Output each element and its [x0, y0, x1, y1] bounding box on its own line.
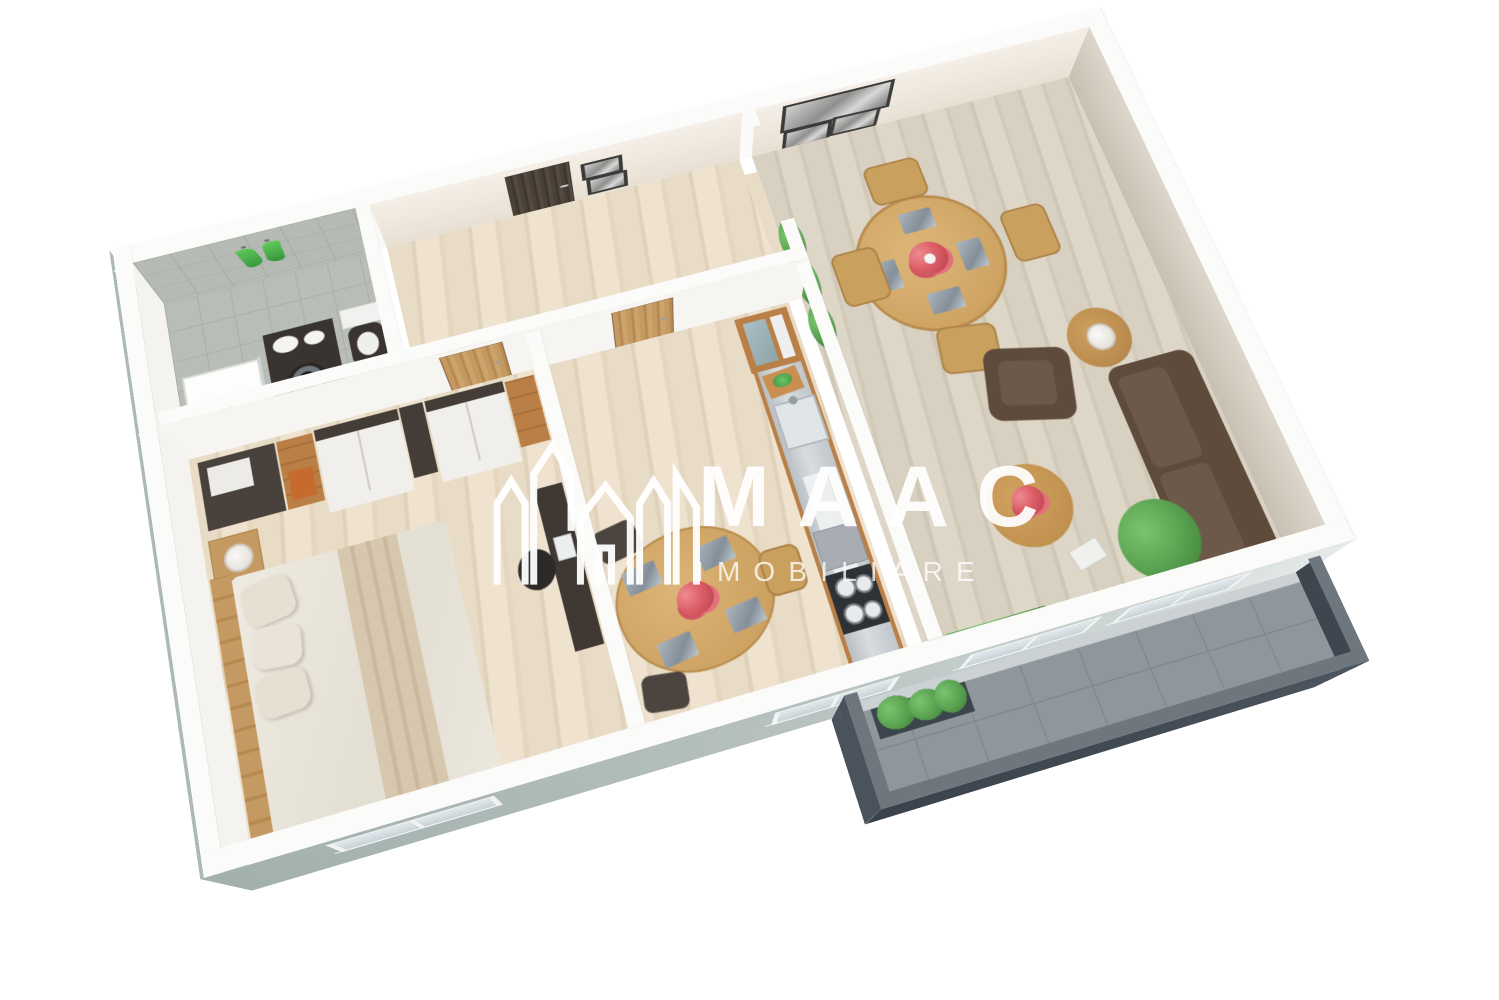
placemat: [724, 596, 767, 634]
coffee-table: [974, 454, 1086, 557]
placemat: [955, 237, 990, 271]
oven: [812, 521, 869, 572]
gas-hob: [824, 563, 890, 634]
wardrobe-box: [207, 457, 254, 496]
bed-blanket: [337, 533, 453, 816]
kitchen-sink: [772, 394, 829, 451]
laptop: [553, 533, 577, 561]
door-handle: [560, 184, 569, 188]
kitchen-chair-wood: [756, 542, 810, 599]
dining-chair: [997, 202, 1063, 264]
toilet-bowl: [355, 329, 381, 357]
placemat: [926, 286, 967, 315]
wardrobe-column-dark: [399, 402, 438, 478]
table-lamp: [1082, 320, 1121, 353]
orange-accent-box: [288, 466, 318, 501]
placemat: [620, 560, 663, 597]
pillow: [251, 621, 304, 672]
pillow: [237, 571, 299, 631]
book: [1068, 536, 1109, 572]
flower-bouquet: [671, 575, 719, 621]
wardrobe-white: [314, 409, 415, 513]
greens: [771, 371, 795, 390]
door-handle: [494, 361, 501, 365]
kitchen-chair-dark: [640, 670, 690, 714]
placemat: [897, 207, 937, 235]
pillow: [252, 663, 313, 722]
counter-white-band: [802, 471, 863, 590]
sink: [303, 328, 326, 346]
placemat: [694, 535, 737, 571]
sink: [271, 333, 299, 355]
wardrobe-dark: [197, 443, 286, 531]
table-lamp: [222, 540, 256, 575]
nightstand: [208, 528, 265, 585]
placemat: [656, 631, 700, 669]
desk-chair: [517, 547, 557, 592]
armchair: [982, 346, 1079, 421]
coffee-table-flowers: [1007, 482, 1049, 519]
door-handle: [661, 317, 667, 321]
towel-green: [261, 240, 287, 263]
floorplan-scene: [0, 0, 1499, 1000]
apartment-floorplan: [142, 58, 1315, 886]
screenshot-root: MAAC IMOBILIARE: [0, 0, 1499, 1000]
towel-green: [234, 247, 266, 269]
wardrobe-shelf-wood: [276, 433, 325, 510]
